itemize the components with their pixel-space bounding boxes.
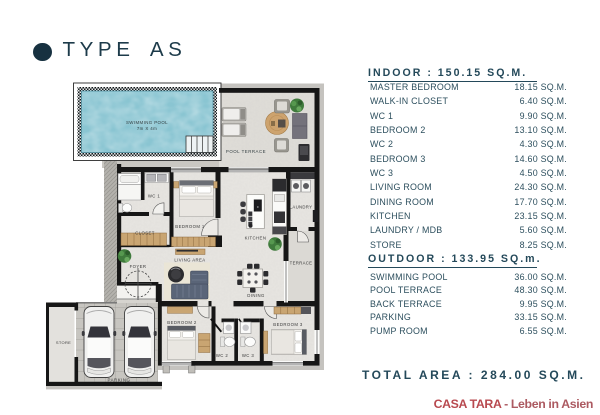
svg-text:WC 2: WC 2 bbox=[216, 353, 229, 358]
svg-text:BEDROOM 3: BEDROOM 3 bbox=[273, 322, 303, 327]
svg-text:WC 3: WC 3 bbox=[242, 353, 255, 358]
svg-text:DINING: DINING bbox=[247, 293, 265, 298]
svg-text:TERRACE: TERRACE bbox=[290, 261, 313, 266]
svg-text:LIVING AREA: LIVING AREA bbox=[174, 258, 205, 263]
svg-text:STORE: STORE bbox=[56, 340, 71, 345]
svg-text:LAUNDRY: LAUNDRY bbox=[290, 205, 313, 210]
svg-text:CLOSET: CLOSET bbox=[135, 231, 155, 236]
svg-text:7m X 4m: 7m X 4m bbox=[137, 126, 157, 131]
svg-text:POOL TERRACE: POOL TERRACE bbox=[226, 149, 266, 154]
svg-text:PARKING: PARKING bbox=[108, 378, 131, 383]
svg-text:SWIMMING POOL: SWIMMING POOL bbox=[126, 120, 168, 125]
svg-text:KITCHEN: KITCHEN bbox=[245, 236, 267, 241]
svg-text:BEDROOM 1: BEDROOM 1 bbox=[175, 224, 205, 229]
svg-text:WC 1: WC 1 bbox=[148, 194, 161, 199]
svg-text:FOYER: FOYER bbox=[130, 264, 147, 269]
svg-text:BEDROOM 2: BEDROOM 2 bbox=[167, 320, 197, 325]
